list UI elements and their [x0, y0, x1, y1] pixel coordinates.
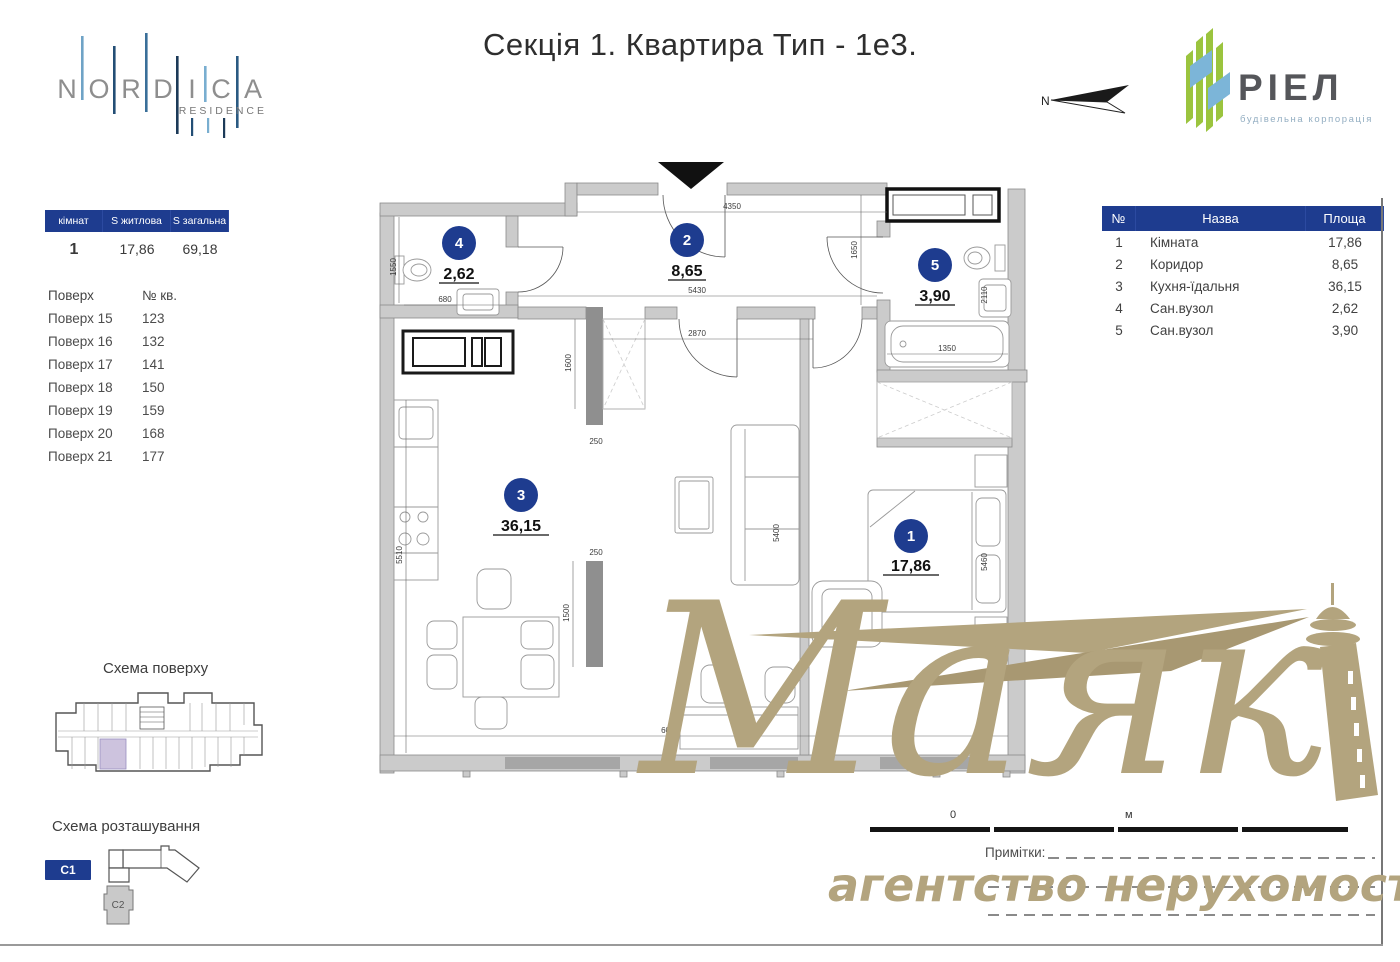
lighthouse-icon [1272, 583, 1397, 803]
svg-text:1350: 1350 [938, 344, 956, 353]
svg-text:250: 250 [589, 548, 603, 557]
svg-text:N: N [57, 74, 77, 104]
compass-n-label: N [1041, 94, 1050, 108]
notes-line [1048, 857, 1375, 859]
floor-row-value: 177 [142, 449, 192, 464]
plan-windows [505, 757, 972, 769]
rooms-header-area: Площа [1306, 206, 1384, 231]
svg-text:680: 680 [438, 295, 452, 304]
notes-line [988, 886, 1375, 888]
room-area: 8,65 [1306, 253, 1384, 275]
room-num: 5 [1102, 319, 1136, 341]
scale-zero-label: 0 [950, 809, 956, 821]
sofa-icon [731, 425, 799, 585]
svg-text:2: 2 [683, 232, 691, 249]
rooms-table: № Назва Площа 1 Кімната 17,86 2 Коридор … [1102, 206, 1384, 341]
nordica-logo: N O R D I C A RESIDENCE [45, 30, 275, 142]
svg-text:2,62: 2,62 [443, 266, 474, 283]
room-num: 4 [1102, 297, 1136, 319]
floor-row-value: 123 [142, 311, 192, 326]
floor-row-value: 150 [142, 380, 192, 395]
svg-text:C: C [211, 74, 231, 104]
svg-text:5400: 5400 [772, 524, 781, 542]
svg-text:2870: 2870 [688, 329, 706, 338]
svg-text:5: 5 [931, 257, 939, 274]
svg-text:36,15: 36,15 [501, 518, 541, 535]
bed-icon [868, 490, 1006, 612]
north-compass-icon: N [1035, 78, 1135, 123]
section-c2-label: С2 [112, 900, 125, 911]
room-name: Сан.вузол [1136, 297, 1306, 319]
summary-value-total: 69,18 [171, 232, 229, 259]
room-area: 2,62 [1306, 297, 1384, 319]
room-num: 3 [1102, 275, 1136, 297]
svg-text:A: A [244, 74, 262, 104]
nordica-residence-label: RESIDENCE [179, 105, 267, 117]
location-scheme: С2 [95, 838, 210, 938]
watermark-subtitle: агентство нерухомості [828, 858, 1400, 912]
svg-text:4350: 4350 [723, 202, 741, 211]
floorplan-sheet: N O R D I C A RESIDENCE Секція 1. Кварти… [0, 0, 1400, 962]
floor-scheme [50, 683, 270, 790]
svg-text:1500: 1500 [562, 604, 571, 622]
floor-row-label: Поверх 17 [48, 357, 142, 372]
summary-table: кімнат S житлова S загальна 1 17,86 69,1… [45, 210, 229, 259]
svg-text:O: O [88, 74, 109, 104]
summary-header-total: S загальна [171, 210, 229, 232]
sheet-frame-right [1381, 198, 1383, 946]
room-badge-2: 2 8,65 [668, 223, 706, 280]
svg-text:R: R [121, 74, 141, 104]
svg-text:3,90: 3,90 [919, 288, 950, 305]
section-c1-badge: С1 [45, 860, 91, 880]
room-badge-5: 5 3,90 [915, 248, 955, 305]
shaft-box [887, 189, 999, 221]
svg-text:3: 3 [517, 487, 525, 504]
room-area: 36,15 [1306, 275, 1384, 297]
scale-bar [870, 827, 1348, 832]
svg-text:1650: 1650 [850, 241, 859, 259]
floors-col-apt: № кв. [142, 288, 192, 303]
nordica-logo-letters: N O R D I C A [57, 74, 262, 104]
room-name: Коридор [1136, 253, 1306, 275]
floor-row-label: Поверх 20 [48, 426, 142, 441]
floors-col-floor: Поверх [48, 288, 142, 303]
floor-row-label: Поверх 16 [48, 334, 142, 349]
room-name: Кухня-їдальня [1136, 275, 1306, 297]
floor-scheme-core [140, 707, 164, 729]
page-title: Секція 1. Квартира Тип - 1е3. [483, 27, 917, 63]
summary-header-living: S житлова [103, 210, 171, 232]
summary-header-rooms: кімнат [45, 210, 103, 232]
room-badge-3: 3 36,15 [493, 478, 549, 535]
notes-line [988, 914, 1375, 916]
desk [680, 707, 798, 749]
entrance-arrow-icon [658, 162, 724, 189]
riel-logo-stripes [1186, 28, 1230, 132]
floor-row-label: Поверх 21 [48, 449, 142, 464]
svg-text:1550: 1550 [389, 258, 398, 276]
room-num: 2 [1102, 253, 1136, 275]
plan-wall-stubs [586, 307, 603, 667]
floor-scheme-title: Схема поверху [103, 660, 208, 677]
highlighted-apartment [100, 739, 126, 769]
floor-row-value: 168 [142, 426, 192, 441]
room-area: 17,86 [1306, 231, 1384, 253]
svg-text:17,86: 17,86 [891, 558, 931, 575]
room-name: Кімната [1136, 231, 1306, 253]
svg-text:8,65: 8,65 [671, 263, 702, 280]
notes-label: Примітки: [985, 845, 1045, 860]
svg-text:2110: 2110 [980, 286, 989, 304]
svg-text:1600: 1600 [564, 354, 573, 372]
toilet-icon [995, 245, 1005, 271]
sheet-frame-bottom [0, 944, 1383, 946]
scale-unit-label: м [1125, 809, 1133, 821]
svg-text:I: I [188, 74, 196, 104]
svg-text:5430: 5430 [688, 286, 706, 295]
floor-row-value: 159 [142, 403, 192, 418]
riel-subtitle: будівельна корпорація [1240, 114, 1373, 125]
svg-text:4: 4 [455, 235, 464, 252]
riel-name: РІЕЛ [1238, 67, 1344, 108]
room-badge-4: 4 2,62 [439, 226, 479, 283]
room-name: Сан.вузол [1136, 319, 1306, 341]
svg-text:5510: 5510 [395, 546, 404, 564]
location-scheme-title: Схема розташування [52, 818, 200, 835]
room-area: 3,90 [1306, 319, 1384, 341]
summary-value-rooms: 1 [45, 232, 103, 259]
rooms-header-name: Назва [1136, 206, 1306, 231]
kitchen-sink-icon [399, 407, 433, 439]
svg-text:250: 250 [589, 437, 603, 446]
room-num: 1 [1102, 231, 1136, 253]
lighthouse-beams [735, 595, 1335, 707]
floor-row-label: Поверх 15 [48, 311, 142, 326]
floor-row-value: 132 [142, 334, 192, 349]
summary-value-living: 17,86 [103, 232, 171, 259]
floor-row-value: 141 [142, 357, 192, 372]
svg-text:D: D [153, 74, 173, 104]
nightstand [975, 455, 1007, 487]
rooms-header-num: № [1102, 206, 1136, 231]
washer-icon [403, 331, 513, 373]
floor-row-label: Поверх 19 [48, 403, 142, 418]
svg-text:1: 1 [907, 528, 915, 545]
floors-list: Поверх № кв. Поверх 15 123 Поверх 16 132… [48, 288, 192, 464]
svg-text:6020: 6020 [661, 726, 679, 735]
riel-logo: РІЕЛ будівельна корпорація [1178, 26, 1378, 138]
svg-text:5460: 5460 [980, 553, 989, 571]
floor-row-label: Поверх 18 [48, 380, 142, 395]
